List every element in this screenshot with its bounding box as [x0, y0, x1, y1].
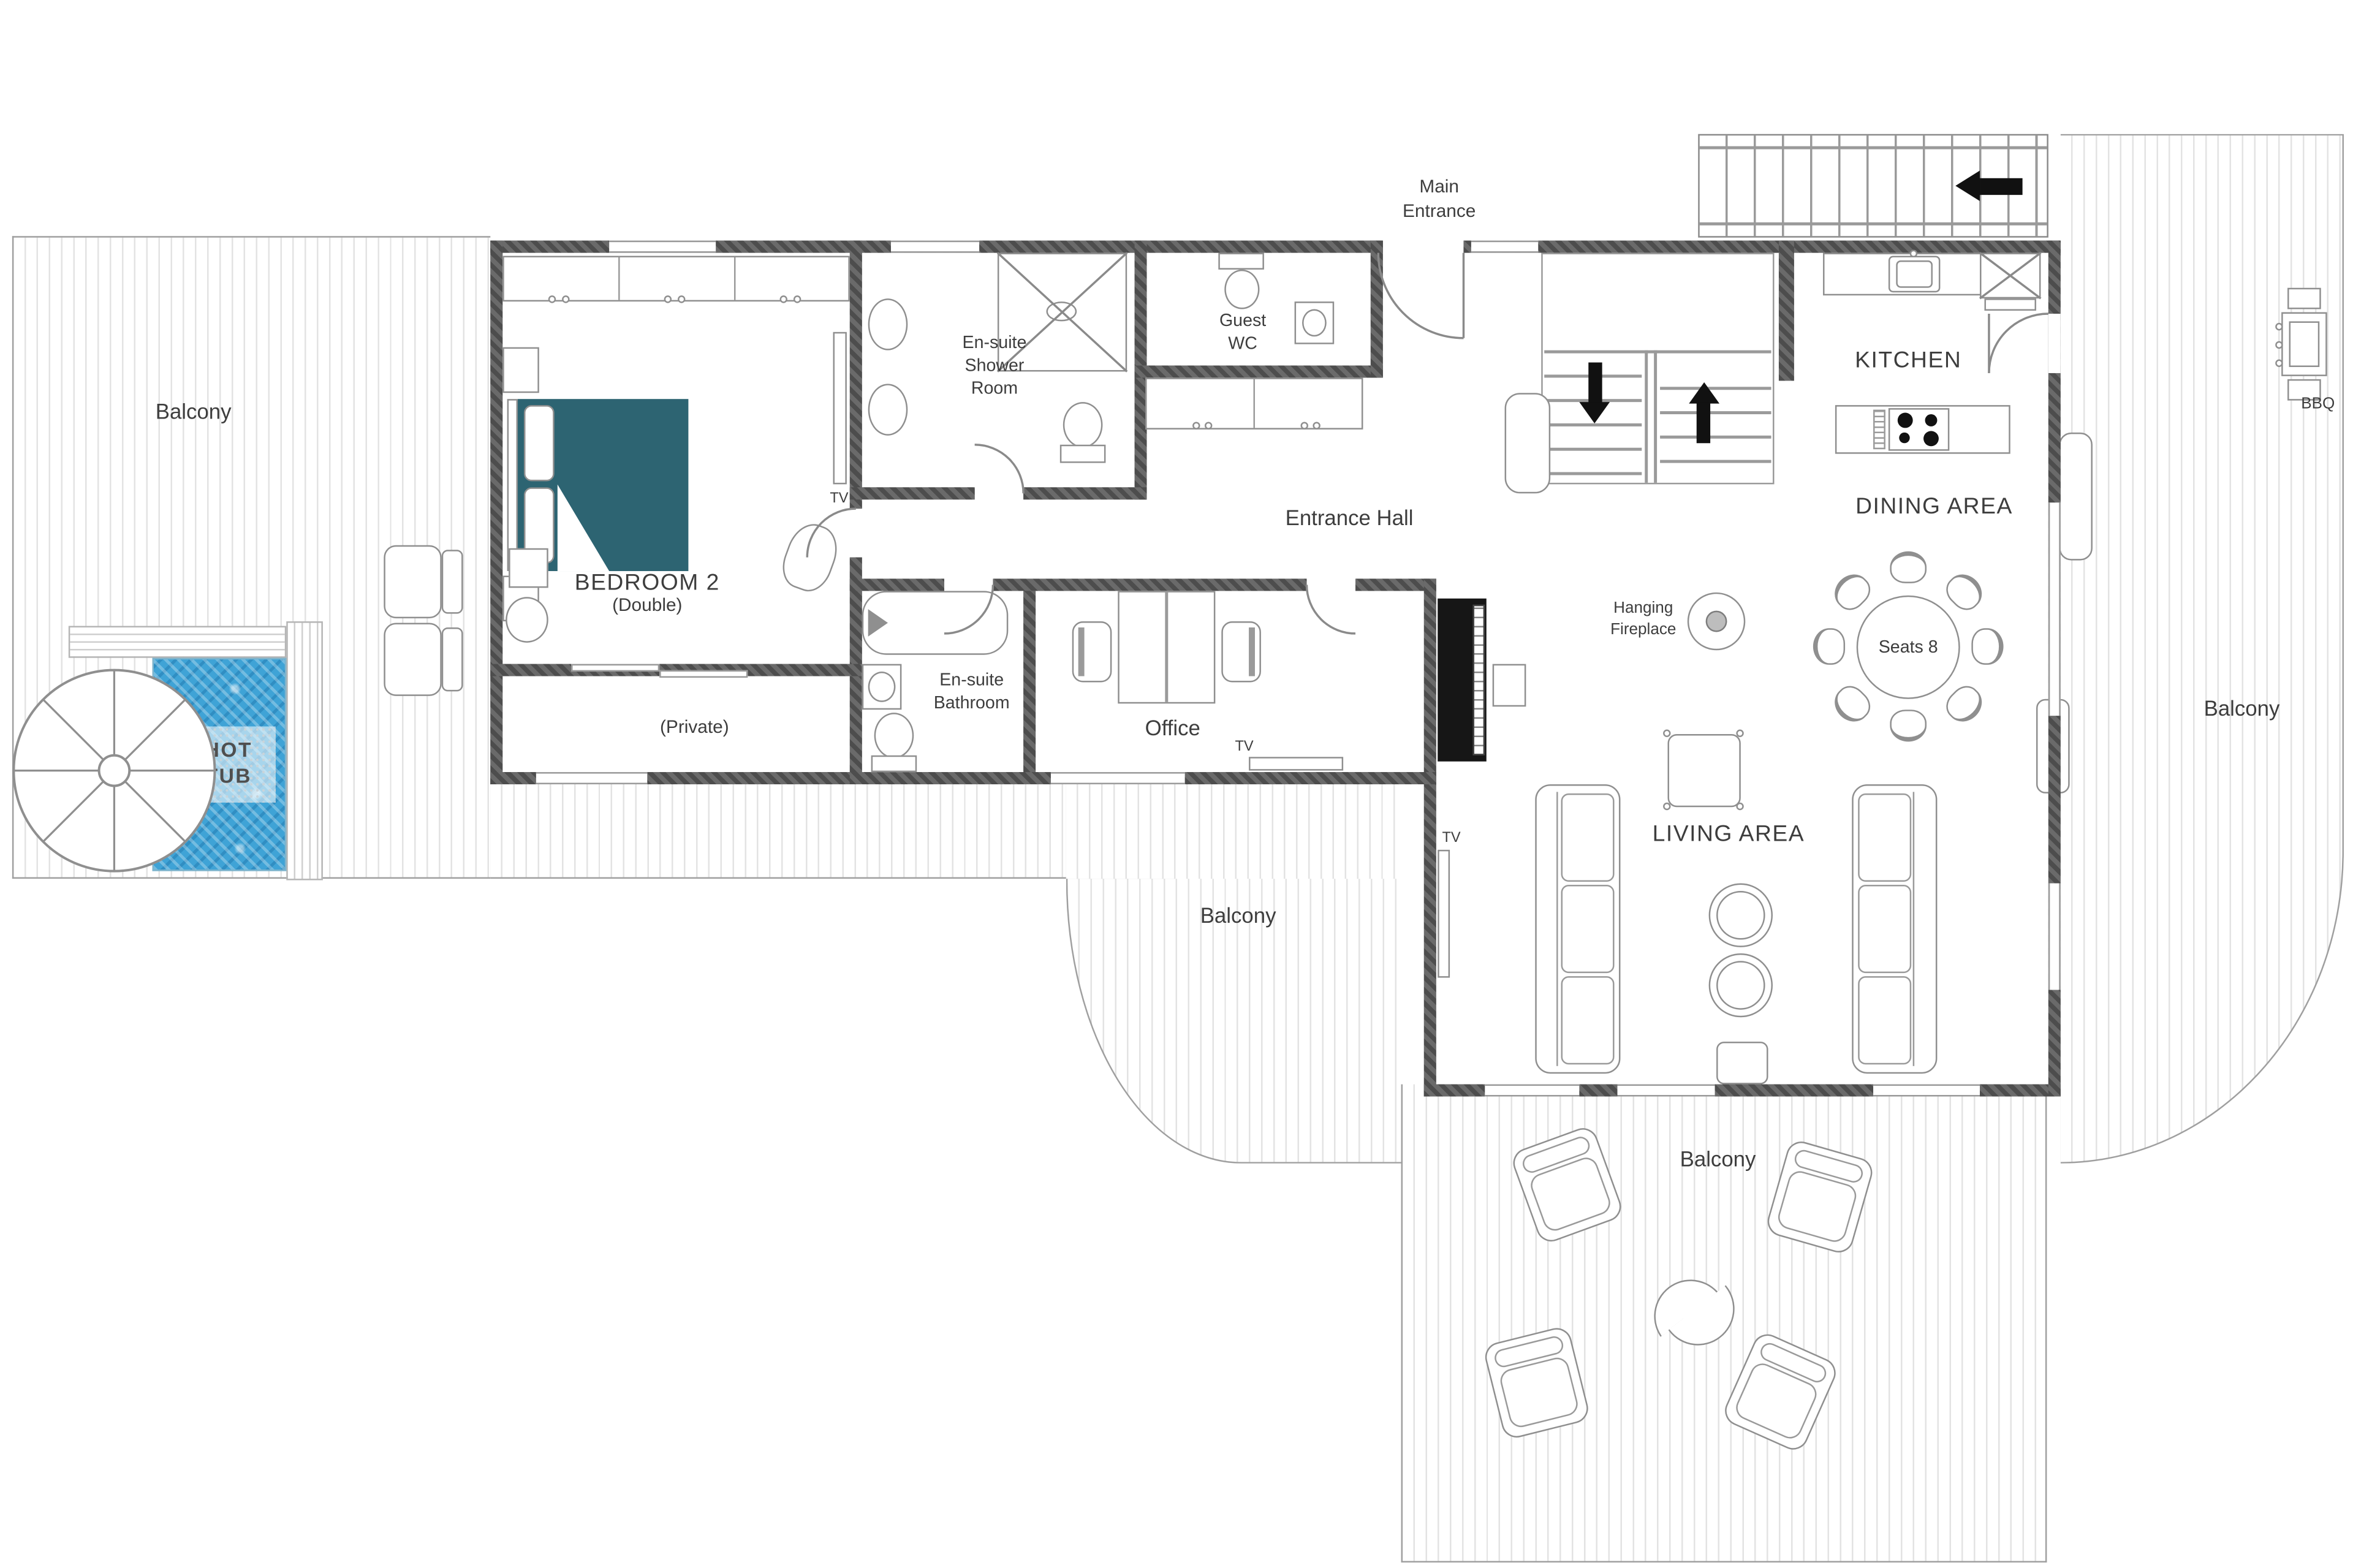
door-arc — [1989, 314, 2048, 373]
hob — [1889, 408, 1949, 451]
cupboard-handle-icon — [1192, 422, 1200, 429]
sink — [868, 384, 908, 436]
balcony-bench — [2059, 433, 2093, 561]
door-arc — [1378, 253, 1463, 338]
office-chair-back — [1249, 627, 1255, 676]
bathtub-tap — [868, 609, 888, 637]
toilet-cistern — [1060, 445, 1106, 463]
wardrobe-handle-icon — [548, 295, 556, 303]
sofa-cushion — [1858, 885, 1911, 973]
label-balcony-right: Balcony — [2204, 694, 2280, 722]
label-balcony-bottom: Balcony — [1680, 1145, 1756, 1173]
lounge-chair — [384, 545, 441, 618]
ottoman — [1716, 1042, 1768, 1085]
hot-tub-step — [286, 621, 323, 881]
hot-tub-step — [69, 626, 286, 657]
hob-burner-icon — [1923, 431, 1939, 446]
lounge-chair — [384, 623, 441, 696]
sink — [868, 298, 908, 350]
dining-chair — [1813, 628, 1845, 665]
hob-burner-icon — [1898, 413, 1913, 428]
label-guest-wc: Guest WC — [1219, 311, 1266, 356]
stairs-direction-arrow — [1980, 178, 2023, 195]
stairs-arrow-head-icon — [1955, 170, 1980, 201]
coffee-table-inner — [1716, 891, 1765, 940]
label-main-entrance: Main Entrance — [1403, 176, 1476, 224]
stairs-down-arrow — [1588, 363, 1602, 404]
sink — [868, 672, 896, 702]
dining-chair — [1941, 680, 1989, 729]
shower-drain — [1046, 301, 1077, 321]
hob-grill — [1873, 410, 1885, 450]
floor-plan-stage: HOT TUB — [0, 0, 2353, 1568]
balcony-left-deck-strip — [490, 784, 1066, 879]
sofa-cushion — [1561, 793, 1615, 882]
label-living-area: LIVING AREA — [1653, 820, 1805, 849]
stairs-up-arrow — [1697, 402, 1710, 443]
label-tv-office: TV — [1235, 738, 1253, 757]
wall — [1023, 591, 1036, 784]
tv-panel — [1438, 850, 1450, 978]
wall — [1424, 578, 1436, 1096]
label-bedroom2-sub: (Double) — [612, 594, 682, 618]
wardrobe — [502, 256, 850, 302]
sofa-back-line — [1913, 792, 1915, 1066]
stair-tread — [1660, 411, 1771, 414]
window — [2048, 884, 2061, 990]
wall — [490, 241, 502, 784]
toilet-bowl — [1063, 402, 1103, 448]
toilet-bowl — [1224, 270, 1259, 309]
wardrobe-handle-icon — [664, 295, 672, 303]
wall — [1463, 241, 2060, 253]
wall — [850, 241, 862, 509]
cupboard-divider — [1253, 379, 1255, 428]
hanging-fireplace-flue — [1706, 611, 1727, 632]
wardrobe-handle-icon — [678, 295, 685, 303]
stairs-down-arrow-head-icon — [1579, 402, 1610, 423]
lounge-chair-foot — [442, 627, 463, 691]
armchair — [506, 597, 548, 643]
toilet-cistern — [1218, 253, 1264, 270]
wall — [1135, 365, 1383, 377]
table-leg-icon — [1663, 803, 1670, 810]
window — [2048, 502, 2061, 716]
door-arc — [1306, 585, 1355, 634]
cupboard-handle-icon — [1301, 422, 1308, 429]
label-hanging-fireplace: Hanging Fireplace — [1610, 599, 1676, 641]
stair-tread — [1544, 472, 1642, 474]
side-table — [509, 548, 548, 588]
toilet-bowl — [874, 713, 914, 759]
bbq-grill-inner — [2289, 321, 2320, 367]
dining-chair — [1941, 567, 1989, 616]
table-leg-icon — [1663, 730, 1670, 737]
stair-rail — [1654, 350, 1657, 483]
piano-keys — [1472, 605, 1485, 756]
sink — [1302, 309, 1327, 337]
wall — [993, 578, 1306, 591]
bbq-knob-icon — [2275, 360, 2283, 367]
coffee-table-inner — [1716, 961, 1765, 1010]
wardrobe-handle-icon — [562, 295, 569, 303]
label-balcony-mid: Balcony — [1200, 901, 1276, 929]
label-dining-seats: Seats 8 — [1879, 637, 1938, 660]
square-table — [1668, 734, 1741, 807]
stair-tread — [1660, 460, 1771, 463]
nightstand — [502, 347, 539, 393]
bed-pillow — [524, 405, 555, 481]
label-bbq: BBQ — [2301, 395, 2335, 415]
window — [1617, 1085, 1715, 1097]
bbq-knob-icon — [2275, 341, 2283, 349]
wall — [850, 578, 944, 591]
wall — [1779, 241, 1794, 381]
label-entrance-hall: Entrance Hall — [1286, 504, 1414, 531]
hob-burner-icon — [1925, 414, 1938, 426]
tv-panel — [833, 332, 847, 485]
stairs-up-arrow-head-icon — [1689, 382, 1719, 404]
sliding-door — [659, 670, 748, 678]
desk-divider — [1165, 593, 1167, 702]
bed-headboard — [507, 399, 518, 571]
wardrobe-handle-icon — [780, 295, 787, 303]
table-leg-icon — [1736, 803, 1743, 810]
dining-chair — [1890, 710, 1927, 741]
armchair — [776, 518, 844, 597]
label-balcony-left: Balcony — [156, 397, 232, 425]
window — [1051, 772, 1185, 784]
door-opening — [2048, 314, 2061, 373]
tap-icon — [1910, 250, 1917, 257]
door-arc — [975, 445, 1024, 494]
cupboard-handle-icon — [1313, 422, 1320, 429]
wall — [1023, 487, 1146, 499]
dining-chair — [1828, 680, 1876, 729]
window — [536, 772, 647, 784]
toilet-cistern — [871, 756, 917, 772]
bbq-knob-icon — [2275, 323, 2283, 330]
balcony-strip-2 — [1066, 784, 1404, 882]
sliding-door — [571, 664, 659, 672]
lounge-chair-foot — [442, 550, 463, 613]
stair-tread — [1660, 436, 1771, 438]
sofa-cushion — [1561, 885, 1615, 973]
label-dining-area: DINING AREA — [1855, 492, 2013, 521]
table-leg-icon — [1736, 730, 1743, 737]
label-tv-bedroom: TV — [830, 490, 848, 509]
wardrobe-divider — [618, 257, 620, 300]
dining-chair — [1890, 551, 1927, 583]
hob-burner-icon — [1899, 433, 1909, 443]
sofa-cushion — [1858, 793, 1911, 882]
window — [609, 241, 716, 253]
hot-tub-text: HOT TUB — [205, 739, 252, 790]
tv-panel — [1249, 757, 1343, 770]
label-tv-living: TV — [1442, 830, 1460, 849]
hall-bench — [1505, 393, 1551, 493]
window — [1471, 241, 1538, 253]
window — [1485, 1085, 1579, 1097]
stair-rail — [1700, 222, 2047, 225]
sofa-back-line — [1556, 792, 1558, 1066]
stair-tread — [1544, 448, 1642, 450]
appliance-tray — [1984, 298, 2036, 311]
stair-rail — [1645, 350, 1648, 483]
label-ensuite-bathroom: En-suite Bathroom — [934, 670, 1010, 716]
bbq-side-tray — [2287, 288, 2321, 309]
stair-rail — [1700, 146, 2047, 149]
wall — [850, 487, 975, 499]
label-kitchen: KITCHEN — [1855, 346, 1961, 376]
cupboard-handle-icon — [1205, 422, 1212, 429]
floor-plan-page: HOT TUB — [0, 0, 2353, 1568]
kitchen-appliance — [1980, 253, 2040, 299]
office-chair — [1221, 621, 1261, 682]
office-chair-back — [1078, 627, 1085, 676]
window — [891, 241, 979, 253]
wall — [1371, 241, 1383, 378]
sofa-cushion — [1561, 976, 1615, 1064]
label-ensuite-shower: En-suite Shower Room — [963, 333, 1027, 401]
window — [1873, 1085, 1980, 1097]
stair-tread — [1544, 423, 1642, 426]
kitchen-sink-basin — [1896, 260, 1933, 288]
stair-landing-line — [1544, 350, 1771, 353]
label-office: Office — [1145, 714, 1200, 741]
wardrobe-handle-icon — [794, 295, 801, 303]
dining-chair — [1971, 628, 2003, 665]
sofa-cushion — [1858, 976, 1911, 1064]
wardrobe-divider — [734, 257, 736, 300]
hot-tub-label: HOT TUB — [181, 727, 276, 803]
piano-stool — [1493, 664, 1526, 707]
dining-chair — [1828, 567, 1876, 616]
label-private: (Private) — [660, 716, 729, 740]
